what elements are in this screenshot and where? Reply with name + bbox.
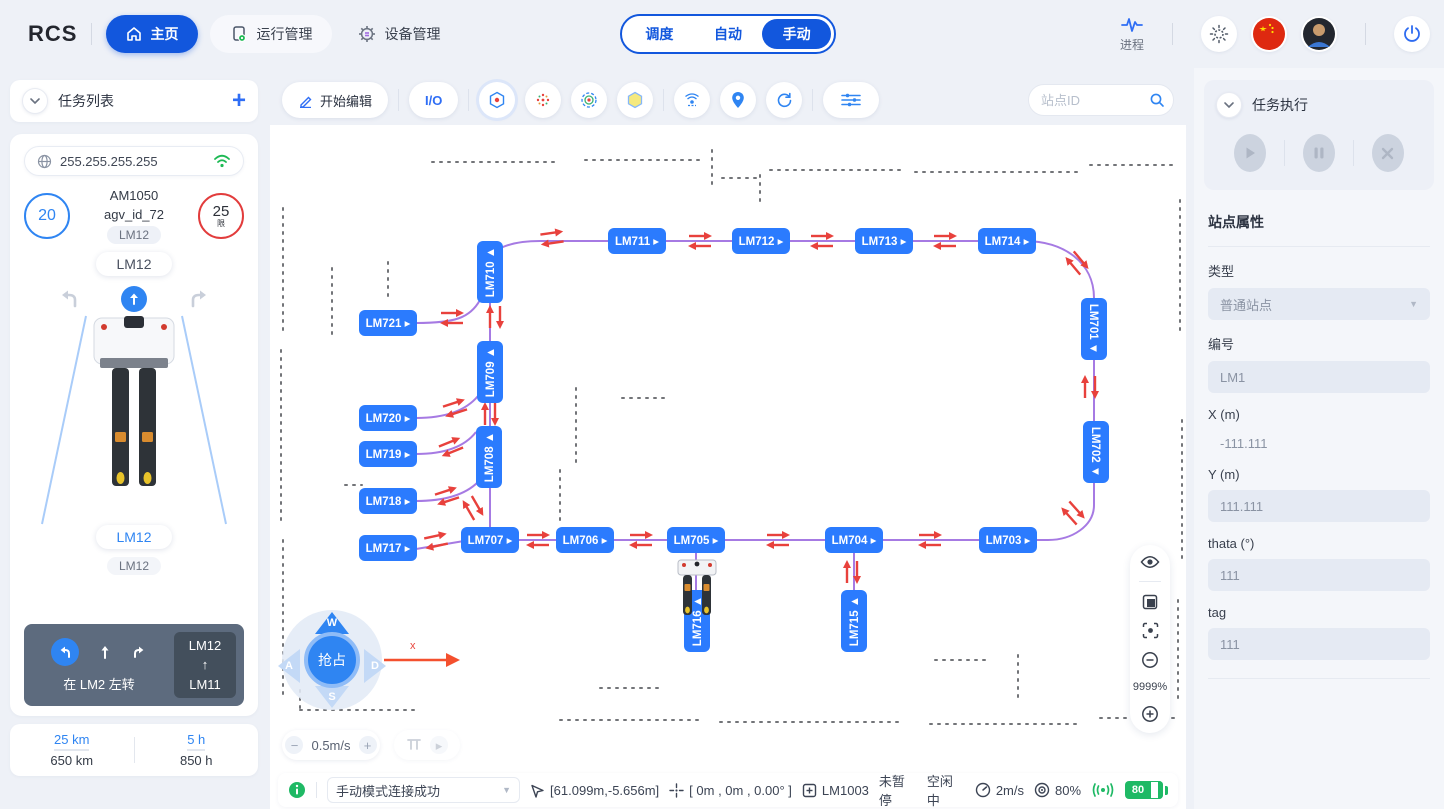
nav-item-operation[interactable]: 运行管理 xyxy=(210,15,332,53)
direction-arrows xyxy=(433,484,461,509)
divider xyxy=(316,782,317,798)
distance-total: 650 km xyxy=(50,753,93,768)
nav-item-label: 主页 xyxy=(150,24,178,44)
map-x-axis: x xyxy=(382,644,462,675)
station-LM719[interactable]: LM719 ▸ xyxy=(359,441,417,467)
chevron-down-icon: ▼ xyxy=(1409,299,1418,309)
filter-button[interactable] xyxy=(823,82,879,118)
io-button[interactable]: I/O xyxy=(409,82,458,118)
distance-today: 25 km xyxy=(54,732,89,751)
svg-text:LM710 ▲: LM710 ▲ xyxy=(485,247,497,297)
offset-value: [ 0m , 0m , 0.00° ] xyxy=(689,783,792,798)
direction-arrows xyxy=(1081,375,1099,399)
route-from: LM12 xyxy=(189,636,222,656)
divider xyxy=(1353,140,1354,166)
close-icon xyxy=(1381,147,1394,160)
io-label: I/O xyxy=(425,93,442,108)
divider xyxy=(398,89,399,111)
svg-text:LM704 ▸: LM704 ▸ xyxy=(832,535,877,547)
svg-text:LM707 ▸: LM707 ▸ xyxy=(468,535,513,547)
svg-text:LM717 ▸: LM717 ▸ xyxy=(366,543,411,555)
speedometer-icon xyxy=(975,782,991,798)
start-edit-label: 开始编辑 xyxy=(320,91,372,110)
direction-buttons xyxy=(24,286,244,312)
station-LM708[interactable]: LM708 ▲ xyxy=(476,426,502,488)
station-search xyxy=(1028,84,1174,116)
route-to: LM11 xyxy=(189,675,221,695)
svg-text:LM720 ▸: LM720 ▸ xyxy=(366,413,411,425)
station-properties: 站点属性 类型 普通站点 ▼ 编号 X (m) -111.111 Y (m) t… xyxy=(1194,190,1444,679)
refresh-button[interactable] xyxy=(766,82,802,118)
joystick-left-label: A xyxy=(285,660,293,672)
concentric-rings-icon xyxy=(580,91,598,109)
straight-icon xyxy=(97,644,113,660)
plus-square-icon xyxy=(802,783,817,798)
theme-toggle-button[interactable] xyxy=(1201,16,1237,52)
direction-arrows xyxy=(422,530,449,553)
agv-model: AM1050 xyxy=(110,188,158,203)
station-properties-title: 站点属性 xyxy=(1208,212,1430,232)
power-button[interactable] xyxy=(1394,16,1430,52)
agv-stats-card: 25 km 650 km 5 h 850 h xyxy=(10,724,258,776)
agv-card: 255.255.255.255 20 AM1050 agv_id_72 LM12… xyxy=(10,134,258,716)
divider xyxy=(1139,581,1161,582)
divider xyxy=(1208,678,1430,679)
x-axis-label: x xyxy=(410,640,416,652)
direction-arrows xyxy=(843,560,861,584)
divider xyxy=(1284,140,1285,166)
crosshair-icon xyxy=(669,783,684,798)
speed-decrease-button[interactable]: − xyxy=(285,736,303,754)
collapse-task-list-button[interactable] xyxy=(22,88,48,114)
svg-text:LM711 ▸: LM711 ▸ xyxy=(615,236,659,248)
joystick-down-label: S xyxy=(328,691,335,703)
mode-switch: 调度 自动 手动 xyxy=(620,14,836,54)
language-flag-button[interactable] xyxy=(1251,16,1287,52)
divider xyxy=(1172,23,1173,45)
direction-arrows xyxy=(1058,498,1087,528)
speed-increase-button[interactable]: + xyxy=(359,736,377,754)
joystick: W A D S 抢占 xyxy=(282,610,382,710)
process-button[interactable]: 进程 xyxy=(1120,16,1144,53)
station-LM720[interactable]: LM720 ▸ xyxy=(359,405,417,431)
fork-play-button[interactable]: ▸ xyxy=(430,736,448,754)
svg-text:LM721 ▸: LM721 ▸ xyxy=(366,318,411,330)
station-LM702[interactable]: LM702 ▼ xyxy=(1083,421,1109,483)
grab-control-button[interactable]: 抢占 xyxy=(304,632,360,688)
direction-arrows xyxy=(539,227,565,248)
distance-stat: 25 km 650 km xyxy=(10,732,134,768)
point-cloud-icon xyxy=(534,91,552,109)
plus-circle-icon xyxy=(1141,705,1159,723)
station-LM706[interactable]: LM706 ▸ xyxy=(556,527,614,553)
zoom-out-button[interactable] xyxy=(1141,651,1159,669)
radar-icon xyxy=(683,91,701,109)
focus-icon xyxy=(1142,622,1159,639)
direction-arrows xyxy=(437,434,466,460)
current-station-pill: LM12 xyxy=(96,252,171,276)
svg-text:LM718 ▸: LM718 ▸ xyxy=(366,496,411,508)
agv-forklift-image xyxy=(16,314,252,531)
svg-text:LM702 ▼: LM702 ▼ xyxy=(1089,427,1101,477)
station-readout: LM1003 xyxy=(802,783,869,798)
limit-value: 25 xyxy=(213,204,230,219)
minimap-button[interactable] xyxy=(1142,594,1158,610)
turn-right-icon xyxy=(131,644,147,660)
app-logo: RCS xyxy=(28,21,77,47)
next-station-tag: LM12 xyxy=(107,557,161,575)
yellow-hexagon-icon xyxy=(626,91,644,109)
china-flag-icon xyxy=(1252,17,1286,51)
svg-text:LM703 ▸: LM703 ▸ xyxy=(986,535,1031,547)
mode-dispatch[interactable]: 调度 xyxy=(625,19,694,49)
joystick-up-label: W xyxy=(327,617,337,629)
start-edit-button[interactable]: 开始编辑 xyxy=(282,82,388,118)
station-LM710[interactable]: LM710 ▲ xyxy=(477,241,503,303)
speed-limit-indicator: 25 限 xyxy=(198,193,244,239)
chevron-down-icon: ▼ xyxy=(502,785,511,795)
agv-summary: 20 AM1050 agv_id_72 LM12 25 限 xyxy=(24,188,244,244)
wifi-icon xyxy=(213,154,231,168)
field-label-number: 编号 xyxy=(1208,334,1430,353)
station-LM707[interactable]: LM707 ▸ xyxy=(461,527,519,553)
turn-instruction: 在 LM2 左转 xyxy=(63,674,135,693)
time-today: 5 h xyxy=(187,732,205,751)
divider xyxy=(812,89,813,111)
time-stat: 5 h 850 h xyxy=(135,732,259,768)
svg-text:LM706 ▸: LM706 ▸ xyxy=(563,535,608,547)
station-LM704[interactable]: LM704 ▸ xyxy=(825,527,883,553)
mode-manual[interactable]: 手动 xyxy=(762,19,831,49)
layers-icon xyxy=(1142,594,1158,610)
station-search-input[interactable] xyxy=(1041,93,1141,108)
divider xyxy=(663,89,664,111)
agv-ip: 255.255.255.255 xyxy=(60,154,158,169)
home-icon xyxy=(126,26,142,42)
refresh-icon xyxy=(776,92,793,109)
turn-left-active-icon xyxy=(51,638,79,666)
navbar: RCS 主页 运行管理 设备管理 调度 自动 手动 xyxy=(0,0,1444,68)
work-state: 空闲中 xyxy=(927,771,965,809)
power-icon xyxy=(1402,24,1422,44)
zoom-percent: 9999% xyxy=(1133,681,1167,693)
manual-speed-value: 0.5m/s xyxy=(311,738,350,753)
direction-arrows xyxy=(1062,248,1091,278)
navigation-instruction-card: 在 LM2 左转 LM12 ↑ LM11 xyxy=(24,624,244,706)
speed-indicator: 20 xyxy=(24,193,70,239)
task-exec-card: 任务执行 xyxy=(1204,80,1434,190)
turn-left-button[interactable] xyxy=(57,287,81,311)
field-label-type: 类型 xyxy=(1208,261,1430,280)
play-icon xyxy=(1243,146,1257,160)
zoom-in-button[interactable] xyxy=(1141,705,1159,723)
center-view-button[interactable] xyxy=(1142,622,1159,639)
fork-icon xyxy=(406,738,422,752)
map-toolbar: 开始编辑 I/O xyxy=(270,82,1186,118)
svg-text:LM708 ▲: LM708 ▲ xyxy=(484,432,496,482)
sliders-icon xyxy=(840,92,862,108)
task-pause-button[interactable] xyxy=(1303,134,1335,172)
layer-rings-button[interactable] xyxy=(571,82,607,118)
svg-text:LM714 ▸: LM714 ▸ xyxy=(985,236,1030,248)
time-total: 850 h xyxy=(180,753,213,768)
status-bar: 手动模式连接成功 ▼ [61.099m,-5.656m] [ 0m , 0m ,… xyxy=(278,773,1178,807)
layer-pointcloud-button[interactable] xyxy=(525,82,561,118)
rcs-app: RCS 主页 运行管理 设备管理 调度 自动 手动 xyxy=(0,0,1444,809)
station-LM717[interactable]: LM717 ▸ xyxy=(359,535,417,561)
svg-text:LM701 ▼: LM701 ▼ xyxy=(1087,304,1099,354)
battery-indicator: 80 xyxy=(1125,781,1168,799)
station-tag-input[interactable] xyxy=(1208,628,1430,660)
battery-value: 80 xyxy=(1125,781,1151,799)
globe-icon xyxy=(37,154,52,169)
field-label-x: X (m) xyxy=(1208,407,1430,422)
nav-item-label: 设备管理 xyxy=(384,24,440,44)
speed-value: 2m/s xyxy=(996,783,1024,798)
svg-text:LM715 ▲: LM715 ▲ xyxy=(849,596,861,646)
field-label-theta: thata (°) xyxy=(1208,536,1430,551)
turn-right-button[interactable] xyxy=(187,287,211,311)
divider xyxy=(1365,23,1366,45)
manual-speed-control: − 0.5m/s + xyxy=(282,730,380,760)
nav-item-label: 运行管理 xyxy=(256,24,312,44)
task-list-header: 任务列表 + xyxy=(10,80,258,122)
station-x-value: -111.111 xyxy=(1208,430,1430,453)
target-station-pill: LM12 xyxy=(96,525,171,549)
task-list-title: 任务列表 xyxy=(58,91,222,111)
svg-text:LM713 ▸: LM713 ▸ xyxy=(862,236,907,248)
station-LM709[interactable]: LM709 ▲ xyxy=(477,341,503,403)
field-label-tag: tag xyxy=(1208,605,1430,620)
divider xyxy=(1208,246,1430,247)
visibility-button[interactable] xyxy=(1140,555,1160,569)
position-value: [61.099m,-5.656m] xyxy=(550,783,659,798)
joystick-right-label: D xyxy=(371,660,379,672)
mode-auto[interactable]: 自动 xyxy=(694,19,763,49)
pause-icon xyxy=(1313,146,1325,160)
layer-zones-button[interactable] xyxy=(617,82,653,118)
agv-identity: AM1050 agv_id_72 LM12 xyxy=(104,188,164,244)
map-pin-icon xyxy=(730,91,746,109)
add-task-button[interactable]: + xyxy=(232,89,246,113)
station-theta-input[interactable] xyxy=(1208,559,1430,591)
station-LM712[interactable]: LM712 ▸ xyxy=(732,228,790,254)
up-arrow-icon: ↑ xyxy=(202,655,209,675)
svg-text:LM705 ▸: LM705 ▸ xyxy=(674,535,719,547)
task-exec-title: 任务执行 xyxy=(1252,95,1308,115)
relocate-button[interactable] xyxy=(674,82,710,118)
chevron-down-icon xyxy=(29,95,41,107)
station-LM703[interactable]: LM703 ▸ xyxy=(979,527,1037,553)
position-readout: [61.099m,-5.656m] xyxy=(530,783,659,798)
pencil-icon xyxy=(298,93,313,108)
search-icon[interactable] xyxy=(1149,92,1165,108)
mode-message-select[interactable]: 手动模式连接成功 ▼ xyxy=(327,777,520,803)
station-LM718[interactable]: LM718 ▸ xyxy=(359,488,417,514)
left-sidebar: 任务列表 + 255.255.255.255 20 AM1050 agv_id_… xyxy=(0,68,268,809)
station-number-input[interactable] xyxy=(1208,361,1430,393)
accuracy-value: 80% xyxy=(1055,783,1081,798)
sun-icon xyxy=(1209,24,1229,44)
station-LM714[interactable]: LM714 ▸ xyxy=(978,228,1036,254)
svg-text:LM719 ▸: LM719 ▸ xyxy=(366,449,411,461)
agv-station-tag: LM12 xyxy=(107,226,161,244)
divider xyxy=(91,23,92,45)
pulse-icon xyxy=(1121,16,1143,34)
signal-icon xyxy=(1091,782,1115,798)
map-area: LM711 ▸LM712 ▸LM713 ▸LM714 ▸LM721 ▸LM720… xyxy=(270,68,1186,809)
process-label: 进程 xyxy=(1120,36,1144,53)
station-LM701[interactable]: LM701 ▼ xyxy=(1081,298,1107,360)
layer-stations-button[interactable] xyxy=(479,82,515,118)
station-LM705[interactable]: LM705 ▸ xyxy=(667,527,725,553)
gear-icon xyxy=(358,25,376,43)
nav-item-device[interactable]: 设备管理 xyxy=(338,15,460,53)
svg-text:LM712 ▸: LM712 ▸ xyxy=(739,236,784,248)
agv-ip-row[interactable]: 255.255.255.255 xyxy=(24,146,244,176)
direction-arrows xyxy=(459,493,487,523)
hexagon-target-icon xyxy=(488,91,506,109)
route-path xyxy=(462,241,1094,540)
joystick-up-button[interactable]: W xyxy=(315,612,349,634)
speed-readout: 2m/s xyxy=(975,782,1024,798)
svg-text:LM709 ▲: LM709 ▲ xyxy=(485,347,497,397)
divider xyxy=(468,89,469,111)
task-play-button[interactable] xyxy=(1234,134,1266,172)
go-forward-button[interactable] xyxy=(121,286,147,312)
map-view-controls: 9999% xyxy=(1130,545,1170,733)
device-monitor-icon xyxy=(230,25,248,43)
locate-button[interactable] xyxy=(720,82,756,118)
agv-id: agv_id_72 xyxy=(104,207,164,222)
cursor-icon xyxy=(530,783,545,798)
target-icon xyxy=(1034,782,1050,798)
station-y-input[interactable] xyxy=(1208,490,1430,522)
station-LM711[interactable]: LM711 ▸ xyxy=(608,228,666,254)
limit-suffix: 限 xyxy=(217,220,225,228)
eye-icon xyxy=(1140,555,1160,569)
avatar[interactable] xyxy=(1301,16,1337,52)
right-panel: 任务执行 站点属性 类型 普通站点 ▼ xyxy=(1194,68,1444,809)
route-box: LM12 ↑ LM11 xyxy=(174,632,236,698)
station-LM721[interactable]: LM721 ▸ xyxy=(359,310,417,336)
minus-circle-icon xyxy=(1141,651,1159,669)
pause-state: 未暂停 xyxy=(879,771,917,809)
navbar-right: 进程 xyxy=(1120,0,1430,68)
joystick-left-button[interactable]: A xyxy=(278,649,300,683)
station-LM715[interactable]: LM715 ▲ xyxy=(841,590,867,652)
nav-item-home[interactable]: 主页 xyxy=(106,15,198,53)
station-LM713[interactable]: LM713 ▸ xyxy=(855,228,913,254)
station-type-value: 普通站点 xyxy=(1220,295,1409,314)
station-type-select[interactable]: 普通站点 ▼ xyxy=(1208,288,1430,320)
joystick-down-button[interactable]: S xyxy=(315,686,349,708)
direction-arrows xyxy=(486,305,504,329)
fork-control[interactable]: ▸ xyxy=(394,730,460,760)
map-svg: LM711 ▸LM712 ▸LM713 ▸LM714 ▸LM721 ▸LM720… xyxy=(270,125,1186,809)
station-value: LM1003 xyxy=(822,783,869,798)
offset-readout: [ 0m , 0m , 0.00° ] xyxy=(669,783,792,798)
task-stop-button[interactable] xyxy=(1372,134,1404,172)
accuracy-readout: 80% xyxy=(1034,782,1081,798)
user-avatar-image xyxy=(1302,17,1336,51)
field-label-y: Y (m) xyxy=(1208,467,1430,482)
info-icon xyxy=(288,781,306,799)
chevron-down-icon xyxy=(1223,99,1235,111)
collapse-task-exec-button[interactable] xyxy=(1216,92,1242,118)
mode-message: 手动模式连接成功 xyxy=(336,781,496,800)
